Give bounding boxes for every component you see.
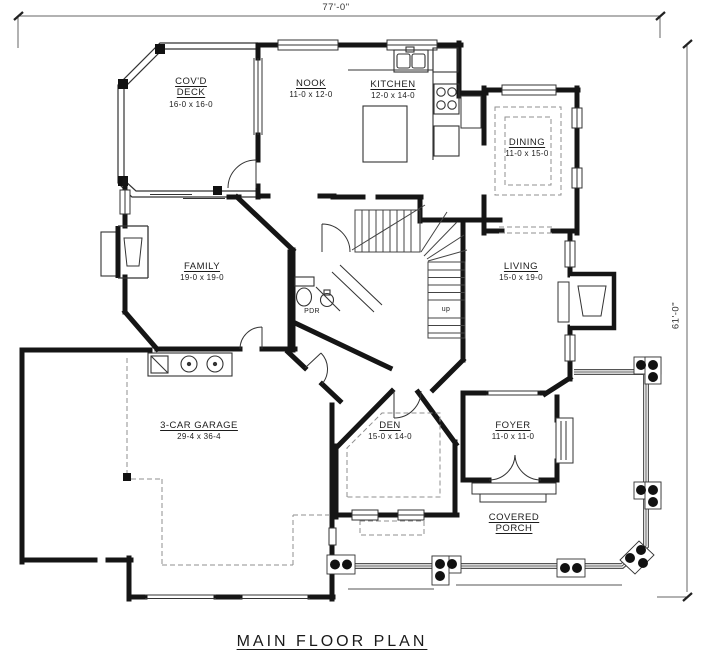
dimension-width-label: 77'-0" (300, 2, 372, 13)
floor-plan-page: 77'-0" 61'-0" COV'D DECK 16-0 x 16-0 NOO… (0, 0, 703, 663)
room-size: 15-0 x 14-0 (368, 432, 412, 442)
kitchen-fixtures (348, 47, 459, 162)
room-label-porch: COVERED PORCH (483, 512, 545, 535)
deck-outline (118, 43, 258, 197)
room-size: 11-0 x 11-0 (492, 432, 535, 442)
room-name: DEN (368, 420, 412, 431)
room-label-den: DEN 15-0 x 14-0 (368, 420, 412, 442)
dashed-post (123, 473, 131, 481)
room-size: 29-4 x 36-4 (160, 432, 238, 442)
room-label-powder: PDR (303, 308, 321, 315)
deck-posts (118, 44, 222, 195)
room-size: 12-0 x 14-0 (370, 91, 415, 101)
room-size: 19-0 x 19-0 (180, 273, 224, 283)
room-name: 3-CAR GARAGE (160, 420, 238, 431)
entry-steps (472, 483, 556, 502)
room-name: DINING (505, 137, 548, 148)
room-size: 11-0 x 15-0 (505, 149, 548, 159)
plan-title: MAIN FLOOR PLAN (237, 633, 428, 651)
room-size: 11-0 x 12-0 (289, 90, 332, 100)
living-fireplace (558, 274, 614, 328)
dimension-height-label: 61'-0" (671, 286, 682, 346)
room-size: 15-0 x 19-0 (499, 273, 543, 283)
stair-up-label: up (441, 306, 451, 313)
utility-fixtures (148, 353, 232, 376)
dashed-overhead-lines (127, 107, 561, 565)
family-fireplace (101, 226, 148, 278)
room-label-kitchen: KITCHEN 12-0 x 14-0 (370, 79, 415, 101)
room-label-living: LIVING 15-0 x 19-0 (499, 261, 543, 283)
room-label-dining: DINING 11-0 x 15-0 (505, 137, 548, 159)
powder-room-fixtures (295, 277, 340, 311)
room-name: COVERED PORCH (483, 512, 545, 535)
room-name: FOYER (492, 420, 535, 431)
room-size: 16-0 x 16-0 (168, 100, 214, 110)
room-name: KITCHEN (370, 79, 415, 90)
room-name: LIVING (499, 261, 543, 272)
room-label-foyer: FOYER 11-0 x 11-0 (492, 420, 535, 442)
floorplan-drawing (0, 0, 703, 663)
staircase (352, 205, 467, 338)
room-label-deck: COV'D DECK 16-0 x 16-0 (168, 76, 214, 109)
room-label-garage: 3-CAR GARAGE 29-4 x 36-4 (160, 420, 238, 442)
room-name: COV'D DECK (168, 76, 214, 99)
room-label-nook: NOOK 11-0 x 12-0 (289, 78, 332, 100)
room-label-family: FAMILY 19-0 x 19-0 (180, 261, 224, 283)
room-name: FAMILY (180, 261, 224, 272)
room-name: NOOK (289, 78, 332, 89)
